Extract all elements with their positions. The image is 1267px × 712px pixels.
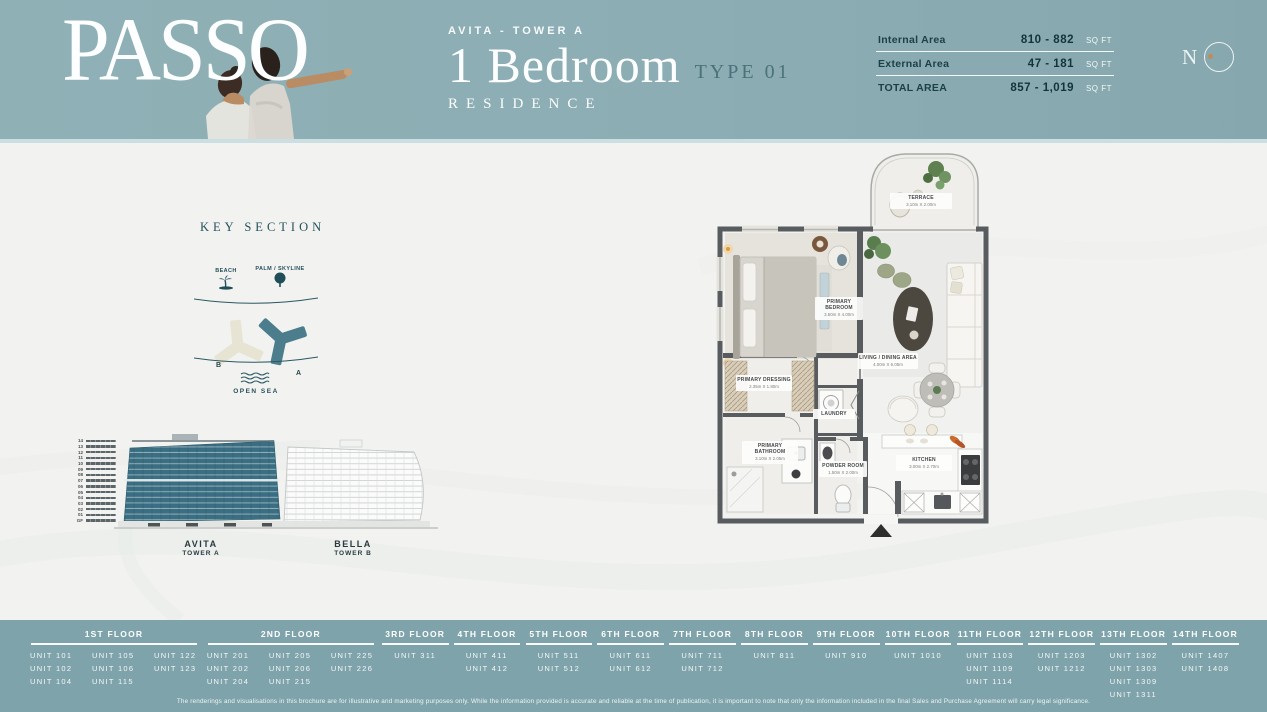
floor-column: 11TH FLOORUNIT 1103UNIT 1109UNIT 1114 <box>954 629 1025 703</box>
floor-units: UNIT 311 <box>380 651 451 664</box>
unit-label: UNIT 512 <box>538 664 580 673</box>
floor-label: 14TH FLOOR <box>1170 629 1241 639</box>
unit-label: UNIT 1302 <box>1110 651 1158 660</box>
floor-column: 3RD FLOORUNIT 311 <box>380 629 451 703</box>
floor-level-number: GF <box>72 518 83 523</box>
area-value: 47 - 181 <box>994 58 1074 70</box>
main-content: KEY SECTION BEACH PALM / SKYLINE <box>0 147 1267 620</box>
unit-label: UNIT 226 <box>331 664 379 673</box>
disclaimer-text: The renderings and visualisations in thi… <box>0 698 1267 705</box>
floor-label: 3RD FLOOR <box>380 629 451 639</box>
area-label: Internal Area <box>878 34 994 46</box>
residence-label: RESIDENCE <box>448 96 791 113</box>
unit-column: UNIT 1407UNIT 1408 <box>1182 651 1230 677</box>
type-label: TYPE 01 <box>695 61 791 92</box>
floor-column: 4TH FLOORUNIT 411UNIT 412 <box>452 629 523 703</box>
floor-label: 5TH FLOOR <box>523 629 594 639</box>
floor-level-number: 14 <box>72 438 83 443</box>
unit-label: UNIT 206 <box>269 664 317 673</box>
floor-units: UNIT 811 <box>739 651 810 664</box>
bella-tower-label: BELLA TOWER B <box>308 539 398 557</box>
unit-label: UNIT 311 <box>394 651 436 660</box>
floor-label: 1ST FLOOR <box>26 629 202 639</box>
unit-column: UNIT 611UNIT 612 <box>610 651 652 677</box>
area-row: External Area47 - 181SQ FT <box>876 52 1114 76</box>
floor-column: 12TH FLOORUNIT 1203UNIT 1212 <box>1026 629 1097 703</box>
sofa <box>947 263 982 387</box>
elevation-drawing <box>112 425 442 535</box>
room-label-kitchen: KITCHEN3.00m X 2.70m <box>896 455 952 471</box>
footer: 1ST FLOORUNIT 101UNIT 102UNIT 104UNIT 10… <box>0 620 1267 712</box>
floors-listing: 1ST FLOORUNIT 101UNIT 102UNIT 104UNIT 10… <box>0 620 1267 703</box>
compass-north-label: N <box>1182 45 1197 70</box>
room-label-laundry: LAUNDRY <box>813 409 855 419</box>
unit-type-title: 1 Bedroom <box>448 39 681 92</box>
floor-units: UNIT 101UNIT 102UNIT 104UNIT 105UNIT 106… <box>26 651 202 690</box>
floor-label: 10TH FLOOR <box>883 629 954 639</box>
unit-column: UNIT 1010 <box>894 651 942 664</box>
unit-label: UNIT 1114 <box>966 677 1013 686</box>
floor-column: 7TH FLOORUNIT 711UNIT 712 <box>667 629 738 703</box>
floor-underline <box>813 643 880 645</box>
unit-label: UNIT 205 <box>269 651 317 660</box>
unit-column: UNIT 411UNIT 412 <box>466 651 508 677</box>
compass-circle-icon <box>1204 42 1234 72</box>
floor-level-number: 05 <box>72 490 83 495</box>
floor-label: 2ND FLOOR <box>203 629 379 639</box>
area-value: 857 - 1,019 <box>994 82 1074 94</box>
key-section-title: KEY SECTION <box>200 220 325 235</box>
floor-level-scale: 1413121110090807060504030201GF <box>72 438 116 523</box>
floor-column: 1ST FLOORUNIT 101UNIT 102UNIT 104UNIT 10… <box>26 629 202 703</box>
floor-underline <box>885 643 952 645</box>
room-label-primary-bathroom: PRIMARY BATHROOM3.10m X 2.05m <box>742 441 798 464</box>
lounge-chair <box>888 396 918 422</box>
floor-column: 9TH FLOORUNIT 910 <box>811 629 882 703</box>
floor-label: 6TH FLOOR <box>595 629 666 639</box>
floor-level-number: 08 <box>72 472 83 477</box>
unit-column: UNIT 1302UNIT 1303UNIT 1309UNIT 1311 <box>1110 651 1158 703</box>
floor-label: 13TH FLOOR <box>1098 629 1169 639</box>
unit-column: UNIT 1103UNIT 1109UNIT 1114 <box>966 651 1013 690</box>
unit-label: UNIT 711 <box>681 651 723 660</box>
floor-units: UNIT 411UNIT 412 <box>452 651 523 677</box>
area-table: Internal Area810 - 882SQ FTExternal Area… <box>876 28 1114 99</box>
floor-units: UNIT 910 <box>811 651 882 664</box>
floor-units: UNIT 611UNIT 612 <box>595 651 666 677</box>
unit-label: UNIT 910 <box>825 651 867 660</box>
unit-label: UNIT 1010 <box>894 651 942 660</box>
floor-label: 8TH FLOOR <box>739 629 810 639</box>
unit-label: UNIT 102 <box>30 664 78 673</box>
unit-column: UNIT 511UNIT 512 <box>538 651 580 677</box>
floor-level-number: 11 <box>72 455 83 460</box>
floor-underline <box>1028 643 1095 645</box>
area-unit: SQ FT <box>1074 60 1112 69</box>
area-value: 810 - 882 <box>994 34 1074 46</box>
tower-avita-elevation <box>124 434 280 522</box>
unit-label: UNIT 811 <box>754 651 796 660</box>
unit-label: UNIT 105 <box>92 651 140 660</box>
building-elevation: 1413121110090807060504030201GF <box>70 425 450 575</box>
entry-arrow <box>870 524 892 537</box>
area-unit: SQ FT <box>1074 36 1112 45</box>
unit-label: UNIT 511 <box>538 651 580 660</box>
floor-level-number: 07 <box>72 478 83 483</box>
floor-level-number: 06 <box>72 484 83 489</box>
area-row: Internal Area810 - 882SQ FT <box>876 28 1114 52</box>
beach-palm-island-icon <box>217 274 235 290</box>
unit-label: UNIT 215 <box>269 677 317 686</box>
area-label: External Area <box>878 58 994 70</box>
avita-tower-label: AVITA TOWER A <box>156 539 246 557</box>
coffee-table <box>893 287 933 351</box>
floor-units: UNIT 201UNIT 202UNIT 204UNIT 205UNIT 206… <box>203 651 379 690</box>
room-label-primary-bedroom: PRIMARY BEDROOM3.50m X 4.00m <box>815 297 863 320</box>
bench <box>820 273 829 297</box>
unit-label: UNIT 612 <box>610 664 652 673</box>
title-block: AVITA - TOWER A 1 Bedroom TYPE 01 RESIDE… <box>448 25 791 113</box>
pouf <box>878 264 895 278</box>
floor-underline <box>382 643 449 645</box>
floor-units: UNIT 511UNIT 512 <box>523 651 594 677</box>
unit-label: UNIT 122 <box>154 651 202 660</box>
floor-underline <box>31 643 196 645</box>
unit-label: UNIT 204 <box>207 677 255 686</box>
floor-label: 11TH FLOOR <box>954 629 1025 639</box>
floor-underline <box>669 643 736 645</box>
floor-label: 7TH FLOOR <box>667 629 738 639</box>
unit-label: UNIT 104 <box>30 677 78 686</box>
unit-label: UNIT 712 <box>681 664 723 673</box>
floor-plan-drawing <box>712 147 1004 539</box>
unit-label: UNIT 611 <box>610 651 652 660</box>
floor-level-number: 01 <box>72 512 83 517</box>
waves-icon <box>240 372 270 385</box>
brand-logo: PASSO <box>62 4 307 94</box>
floor-units: UNIT 711UNIT 712 <box>667 651 738 677</box>
room-label-living-dining: LIVING / DINING AREA4.00m X 6.05m <box>858 353 918 369</box>
floor-units: UNIT 1203UNIT 1212 <box>1026 651 1097 677</box>
unit-label: UNIT 1212 <box>1038 664 1086 673</box>
tower-label: AVITA - TOWER A <box>448 25 791 37</box>
area-label: TOTAL AREA <box>878 82 994 94</box>
unit-label: UNIT 1309 <box>1110 677 1158 686</box>
floor-plan: TERRACE3.10m X 2.00m PRIMARY BEDROOM3.50… <box>712 147 1004 539</box>
palm-skyline-legend: PALM / SKYLINE <box>252 266 308 293</box>
floor-level-number: 10 <box>72 461 83 466</box>
unit-label: UNIT 202 <box>207 664 255 673</box>
ground-line <box>114 521 438 528</box>
room-label-terrace: TERRACE3.10m X 2.00m <box>890 193 952 209</box>
compass: N <box>1182 42 1234 72</box>
shore-arc-bottom <box>192 356 320 368</box>
floor-level-number: 13 <box>72 444 83 449</box>
floor-underline <box>526 643 593 645</box>
room-label-primary-dressing: PRIMARY DRESSING2.35m X 1.80m <box>736 375 792 391</box>
unit-column: UNIT 311 <box>394 651 436 664</box>
compass-dot-icon <box>1208 54 1213 59</box>
floor-underline <box>957 643 1024 645</box>
unit-label: UNIT 201 <box>207 651 255 660</box>
tree-icon <box>273 272 287 288</box>
floor-level-number: 03 <box>72 501 83 506</box>
unit-column: UNIT 225UNIT 226 <box>331 651 379 690</box>
unit-label: UNIT 115 <box>92 677 140 686</box>
beach-legend: BEACH <box>208 268 244 295</box>
floor-underline <box>454 643 521 645</box>
floor-column: 14TH FLOORUNIT 1407UNIT 1408 <box>1170 629 1241 703</box>
floor-level-number: 12 <box>72 450 83 455</box>
floor-level-number: 02 <box>72 507 83 512</box>
floor-underline <box>597 643 664 645</box>
floor-label: 12TH FLOOR <box>1026 629 1097 639</box>
tower-bella-elevation <box>284 440 423 522</box>
floor-column: 5TH FLOORUNIT 511UNIT 512 <box>523 629 594 703</box>
unit-column: UNIT 910 <box>825 651 867 664</box>
floor-units: UNIT 1302UNIT 1303UNIT 1309UNIT 1311 <box>1098 651 1169 703</box>
floor-units: UNIT 1407UNIT 1408 <box>1170 651 1241 677</box>
unit-label: UNIT 1303 <box>1110 664 1158 673</box>
unit-label: UNIT 101 <box>30 651 78 660</box>
unit-column: UNIT 122UNIT 123 <box>154 651 202 690</box>
unit-label: UNIT 412 <box>466 664 508 673</box>
unit-column: UNIT 711UNIT 712 <box>681 651 723 677</box>
floor-label: 9TH FLOOR <box>811 629 882 639</box>
floor-level-number: 04 <box>72 495 83 500</box>
unit-label: UNIT 1103 <box>966 651 1013 660</box>
unit-label: UNIT 1203 <box>1038 651 1086 660</box>
floor-level-number: 09 <box>72 467 83 472</box>
floor-column: 10TH FLOORUNIT 1010 <box>883 629 954 703</box>
floor-underline <box>1172 643 1239 645</box>
unit-label: UNIT 106 <box>92 664 140 673</box>
floor-units: UNIT 1010 <box>883 651 954 664</box>
key-section: KEY SECTION BEACH PALM / SKYLINE <box>186 220 336 410</box>
floor-underline <box>741 643 808 645</box>
floor-column: 2ND FLOORUNIT 201UNIT 202UNIT 204UNIT 20… <box>203 629 379 703</box>
floor-column: 6TH FLOORUNIT 611UNIT 612 <box>595 629 666 703</box>
unit-label: UNIT 1408 <box>1182 664 1230 673</box>
unit-label: UNIT 123 <box>154 664 202 673</box>
floor-label: 4TH FLOOR <box>452 629 523 639</box>
floor-level-row: GF <box>72 518 116 524</box>
unit-label: UNIT 411 <box>466 651 508 660</box>
unit-column: UNIT 1203UNIT 1212 <box>1038 651 1086 677</box>
tower-a-letter: A <box>296 370 301 377</box>
unit-label: UNIT 1407 <box>1182 651 1230 660</box>
area-row: TOTAL AREA857 - 1,019SQ FT <box>876 76 1114 99</box>
unit-column: UNIT 105UNIT 106UNIT 115 <box>92 651 140 690</box>
brochure-page: PASSO AVITA - TOWER A 1 Bedroom TYPE 01 … <box>0 0 1267 712</box>
pouf <box>893 273 911 288</box>
open-sea-label: OPEN SEA <box>186 388 326 395</box>
unit-column: UNIT 101UNIT 102UNIT 104 <box>30 651 78 690</box>
floor-column: 13TH FLOORUNIT 1302UNIT 1303UNIT 1309UNI… <box>1098 629 1169 703</box>
unit-column: UNIT 205UNIT 206UNIT 215 <box>269 651 317 690</box>
floor-underline <box>208 643 373 645</box>
unit-label: UNIT 1109 <box>966 664 1013 673</box>
area-unit: SQ FT <box>1074 84 1112 93</box>
floor-underline <box>1100 643 1167 645</box>
floor-units: UNIT 1103UNIT 1109UNIT 1114 <box>954 651 1025 690</box>
header: PASSO AVITA - TOWER A 1 Bedroom TYPE 01 … <box>0 0 1267 143</box>
floor-column: 8TH FLOORUNIT 811 <box>739 629 810 703</box>
room-label-powder-room: POWDER ROOM1.50m X 2.00m <box>819 461 867 477</box>
unit-column: UNIT 201UNIT 202UNIT 204 <box>207 651 255 690</box>
unit-column: UNIT 811 <box>754 651 796 664</box>
unit-label: UNIT 225 <box>331 651 379 660</box>
